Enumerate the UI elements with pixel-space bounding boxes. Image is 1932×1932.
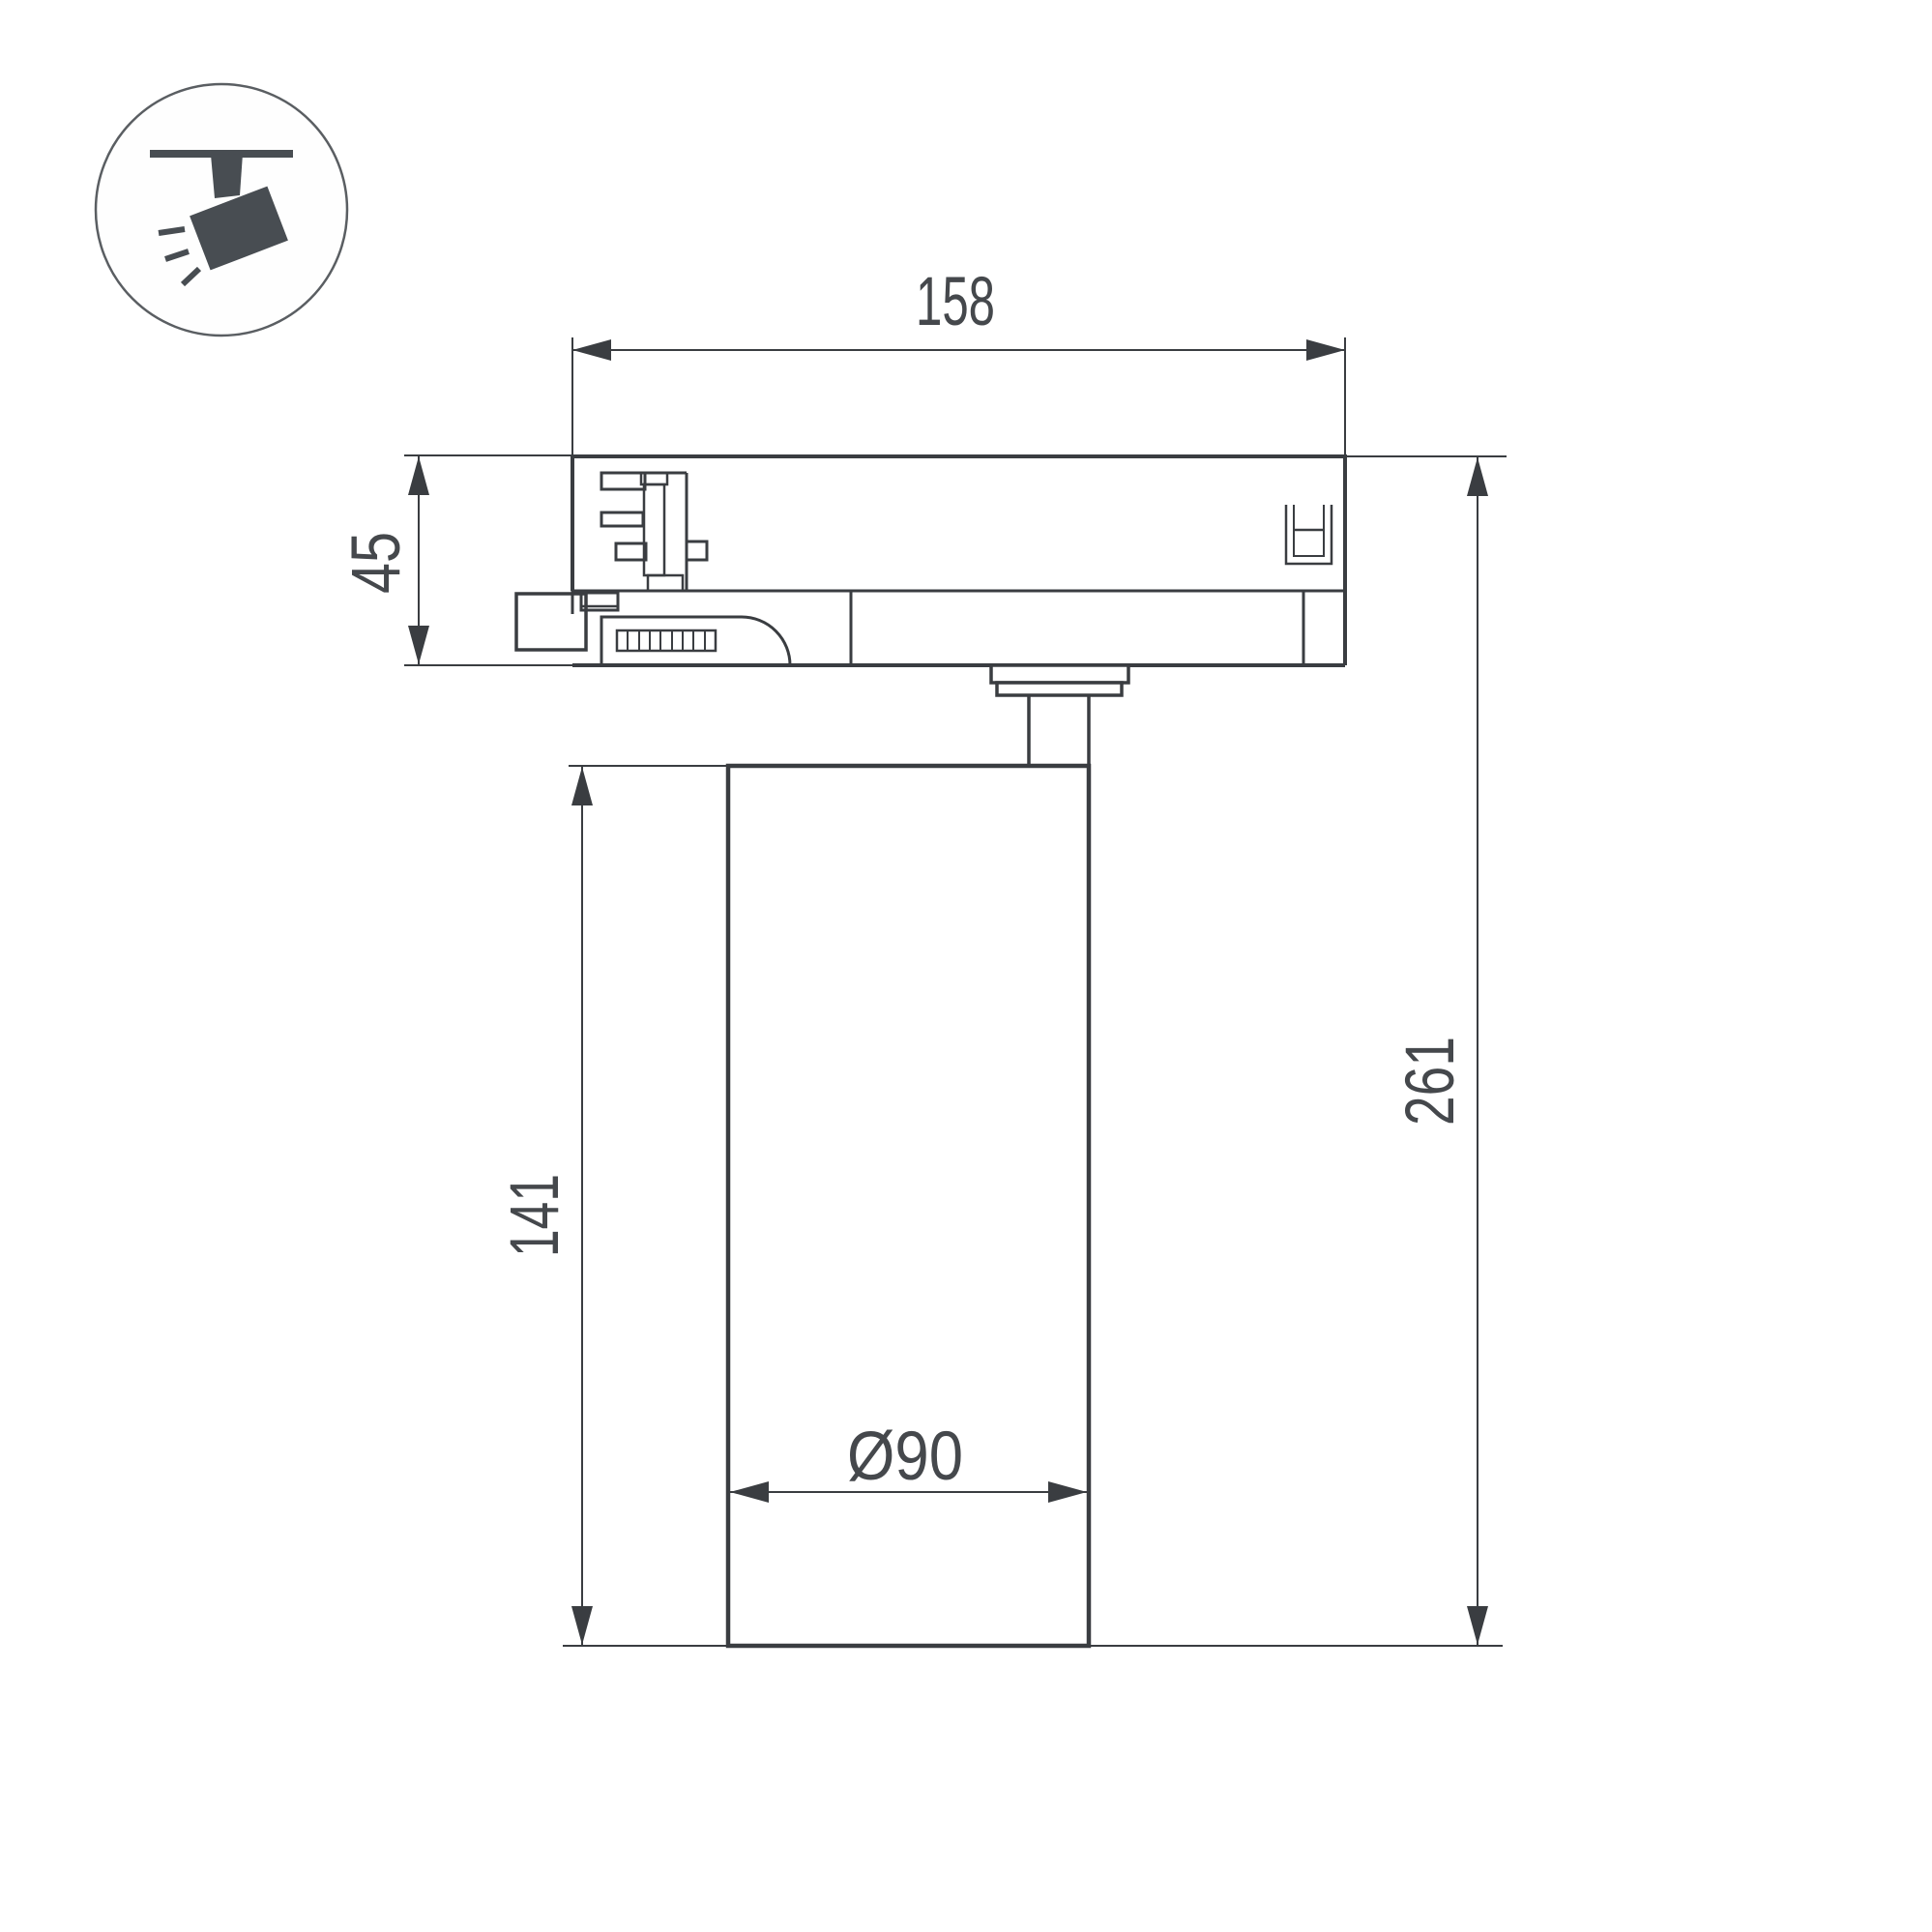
dimension-label-141: 141 xyxy=(497,1174,573,1257)
dimension-label-45: 45 xyxy=(338,532,415,594)
contact-prong-top xyxy=(601,473,645,489)
dimension-158: 158 xyxy=(572,264,1345,454)
dimension-label-261: 261 xyxy=(1392,1037,1469,1126)
contact-block-side-tab xyxy=(687,542,707,560)
adapter-slider-body xyxy=(601,617,790,665)
arrowhead-left xyxy=(572,339,611,361)
dimension-261: 261 xyxy=(1091,456,1507,1646)
contact-shaft-foot xyxy=(648,575,683,591)
icon-light-ray xyxy=(159,229,185,233)
adapter-ground-clip xyxy=(1286,505,1332,564)
dip-switch-window xyxy=(617,630,716,651)
lock-lever xyxy=(516,594,586,650)
icon-stem xyxy=(211,154,243,198)
contact-prong-bottom xyxy=(616,543,646,560)
technical-drawing-page: 158 45 141 261 Ø90 xyxy=(0,0,1932,1932)
arrowhead-right xyxy=(1306,339,1345,361)
swivel-flange-lower xyxy=(997,683,1122,695)
contact-prong-middle xyxy=(601,512,643,526)
arrowhead-down xyxy=(408,626,429,664)
cylinder-body xyxy=(728,766,1089,1646)
adapter-contact-block xyxy=(601,473,707,591)
arrowhead-up xyxy=(408,456,429,495)
arrowhead-up xyxy=(571,767,593,805)
arrowhead-down xyxy=(571,1606,593,1645)
dimension-45: 45 xyxy=(338,455,572,665)
track-light-dimension-drawing: 158 45 141 261 Ø90 xyxy=(0,0,1932,1932)
track-spotlight-icon xyxy=(96,84,347,336)
dimension-141: 141 xyxy=(497,766,726,1646)
dimension-label-diameter-90: Ø90 xyxy=(847,1419,963,1495)
slider-body-outline xyxy=(601,617,790,665)
dimension-label-158: 158 xyxy=(916,264,995,340)
lamp-body xyxy=(728,665,1128,1646)
arrowhead-down xyxy=(1467,1606,1488,1645)
contact-shaft xyxy=(644,484,664,575)
swivel-flange-upper xyxy=(991,665,1128,683)
arrowhead-up xyxy=(1467,457,1488,496)
